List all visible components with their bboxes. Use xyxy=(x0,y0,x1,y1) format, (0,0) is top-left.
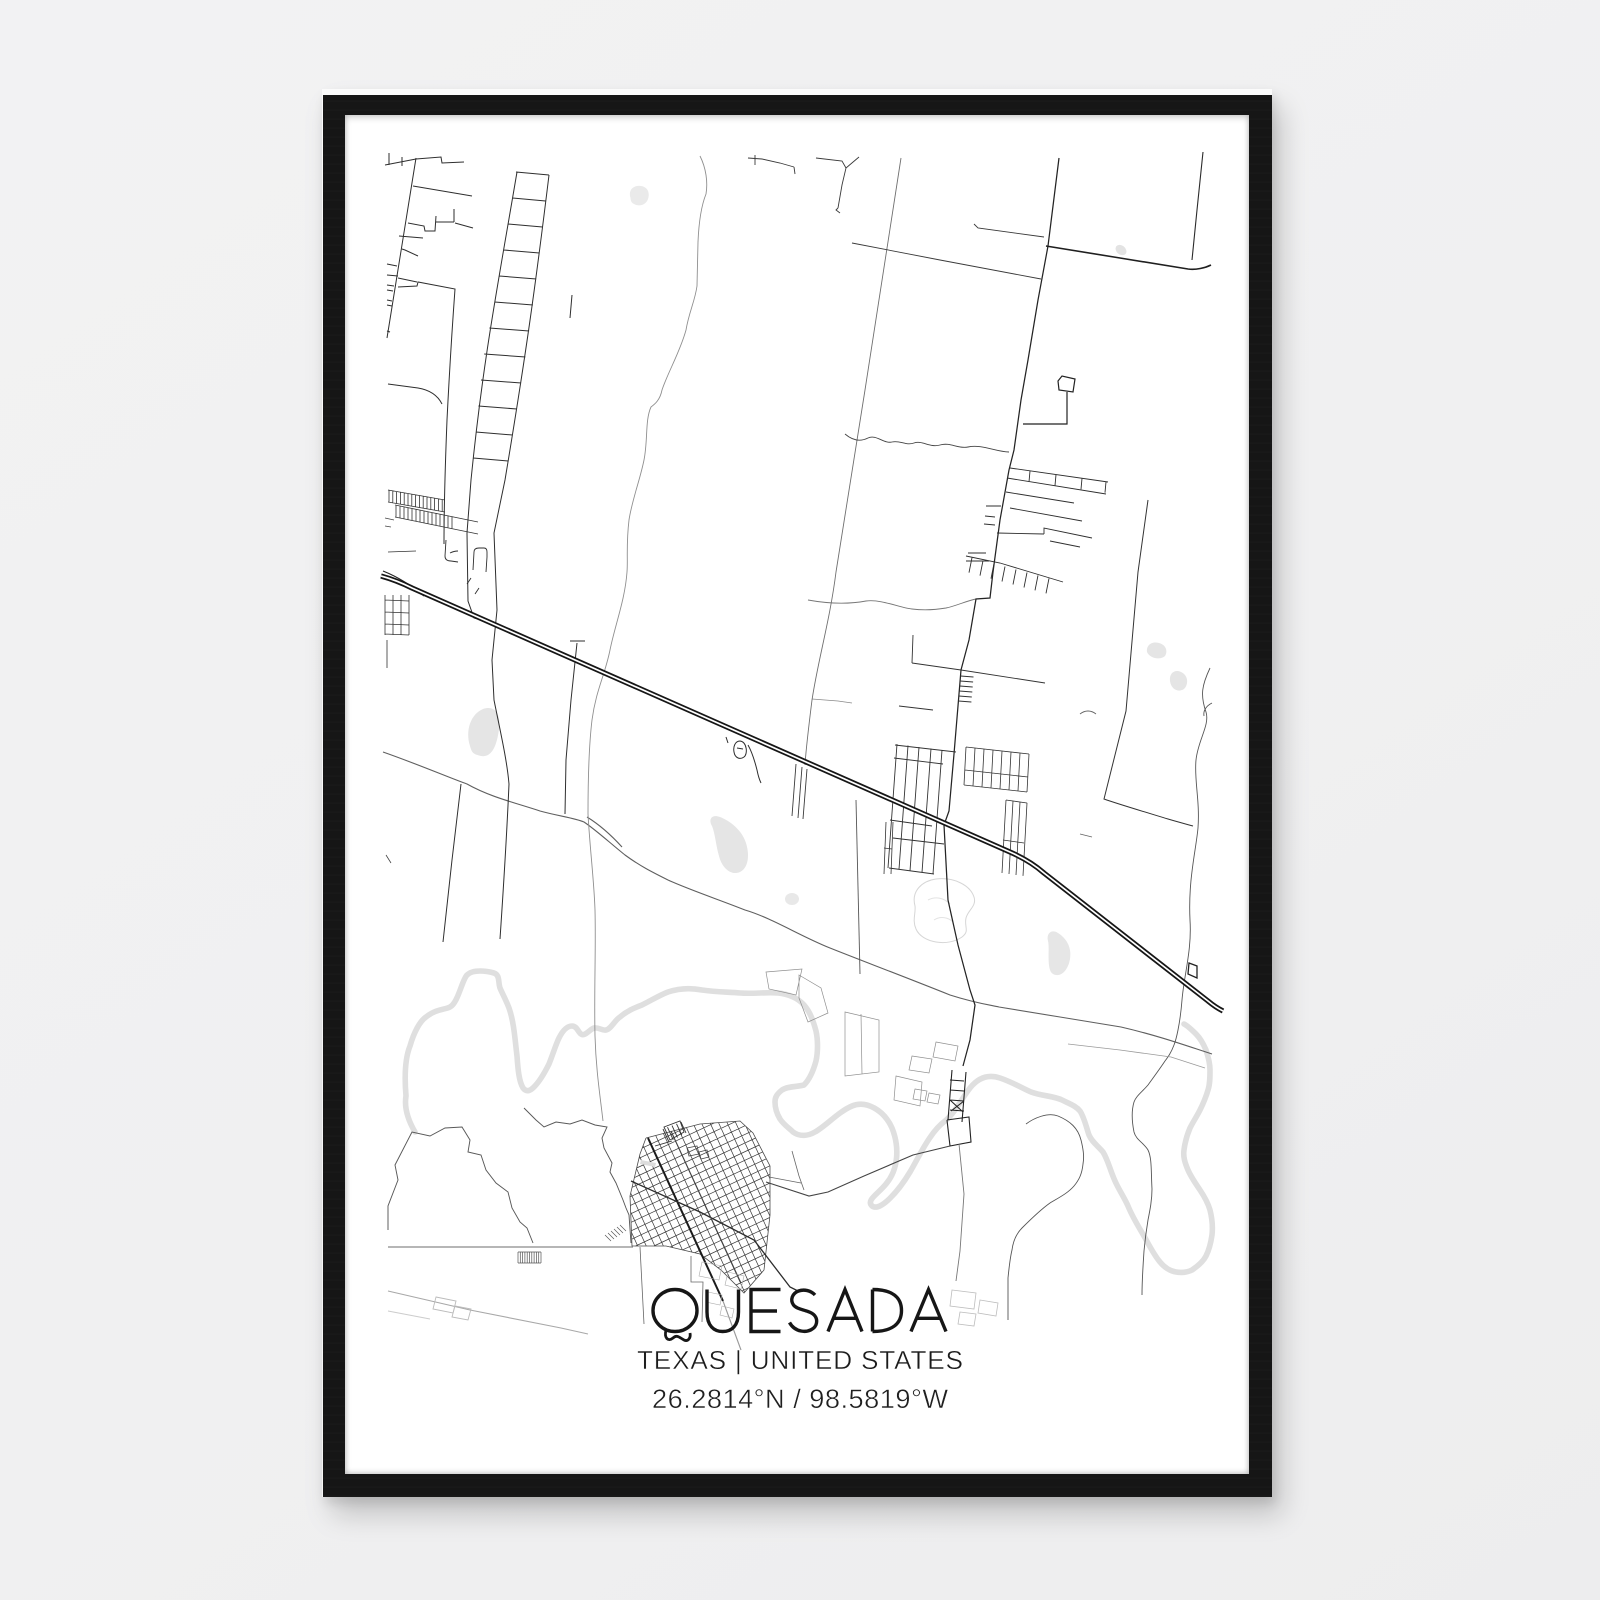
svg-text:TEXAS | UNITED STATES: TEXAS | UNITED STATES xyxy=(637,1345,963,1375)
svg-text:26.2814°N / 98.5819°W: 26.2814°N / 98.5819°W xyxy=(652,1383,948,1414)
